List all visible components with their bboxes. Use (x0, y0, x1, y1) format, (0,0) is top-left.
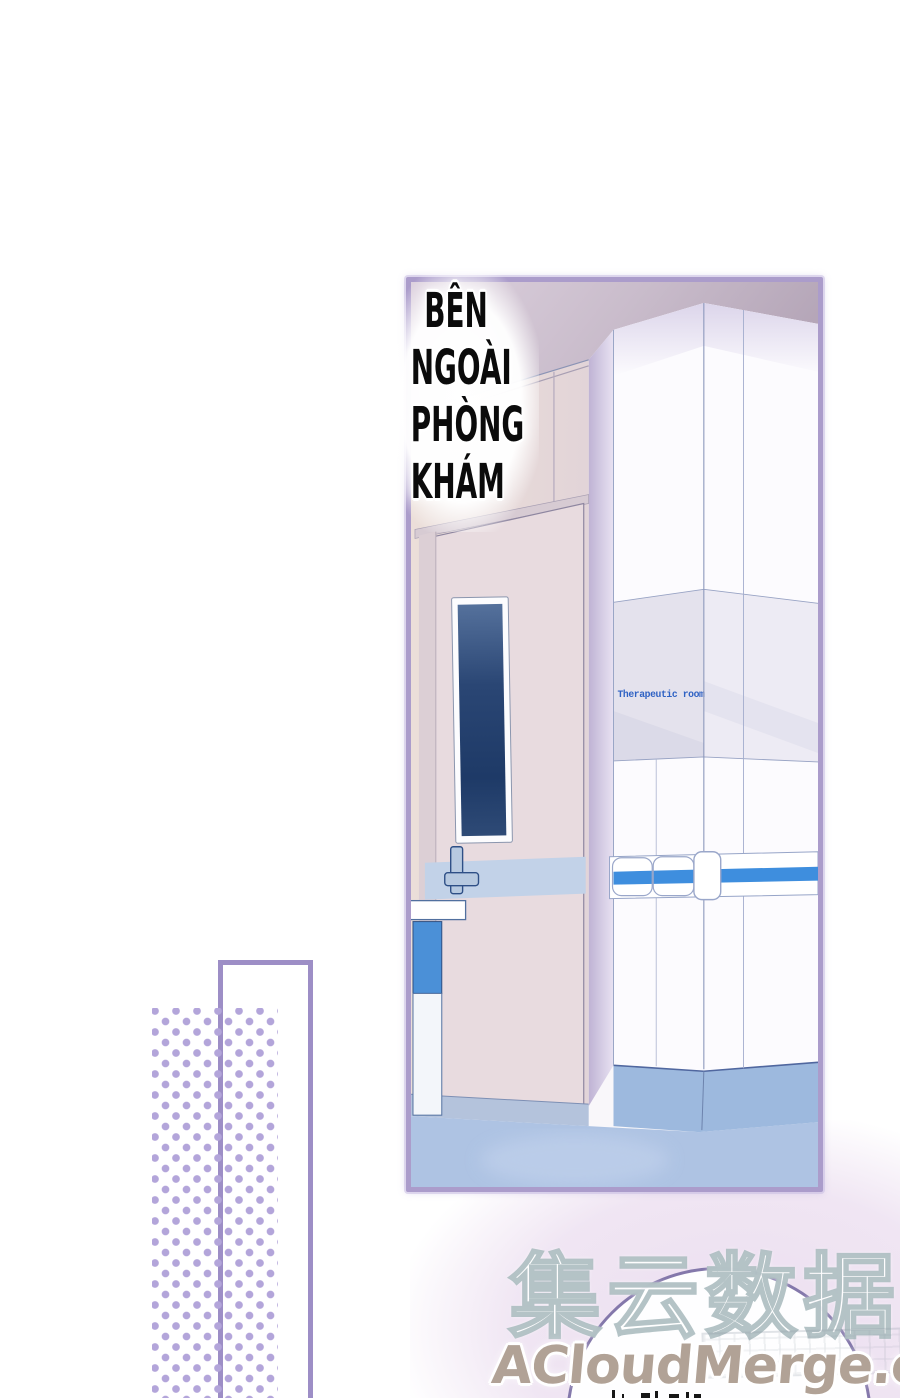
door-window-glass (458, 604, 507, 836)
caption-line: NGOÀI (411, 340, 501, 397)
floor-highlight (480, 1134, 669, 1186)
therapeutic-room-sign: Therapeutic room (617, 689, 705, 700)
caption-line: PHÒNG (411, 397, 501, 454)
watermark-site: ACloudMerge.com (489, 1336, 900, 1396)
dot-pattern-decor (152, 1008, 278, 1398)
pedestal-white-block (413, 993, 442, 1115)
caption-line: BÊN (411, 283, 501, 340)
pedestal-blue-block (413, 922, 442, 994)
caption-line: KHÁM (411, 454, 501, 511)
corner-recess (589, 330, 614, 1106)
handrail-bracket (694, 852, 721, 900)
corner-baseboard (614, 1062, 818, 1132)
caption: BÊN NGOÀI PHÒNG KHÁM (378, 283, 534, 511)
door-window (452, 597, 513, 843)
comic-page: 集云数据 ACloudMerge.com (0, 0, 900, 1398)
pedestal-tray (411, 901, 466, 920)
handrail (610, 852, 818, 900)
